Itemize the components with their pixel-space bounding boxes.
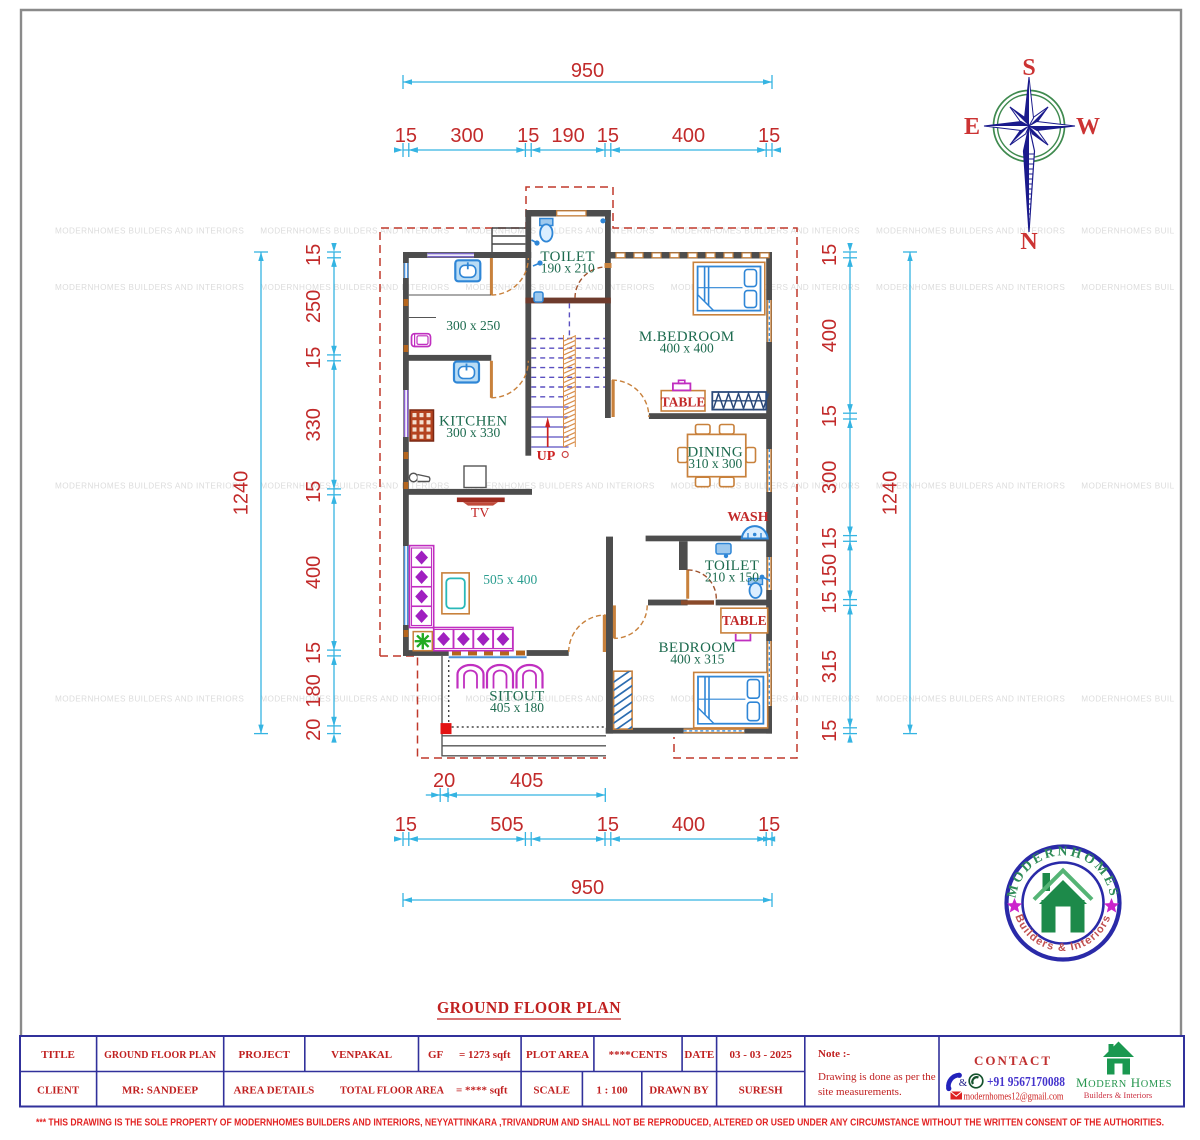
svg-text:UP: UP bbox=[537, 449, 556, 464]
svg-text:405 x 180: 405 x 180 bbox=[490, 700, 544, 715]
svg-text:+91 9567170088: +91 9567170088 bbox=[987, 1074, 1065, 1089]
svg-text:150: 150 bbox=[819, 554, 841, 587]
svg-text:15: 15 bbox=[819, 720, 841, 742]
svg-text:505 x 400: 505 x 400 bbox=[483, 572, 537, 587]
svg-text:15: 15 bbox=[303, 347, 325, 369]
svg-text:Builders & Interiors: Builders & Interiors bbox=[1084, 1090, 1152, 1100]
svg-text:20: 20 bbox=[303, 719, 325, 741]
svg-text:15: 15 bbox=[758, 125, 780, 147]
svg-text:250: 250 bbox=[303, 290, 325, 323]
svg-text:15: 15 bbox=[303, 481, 325, 503]
svg-text:405: 405 bbox=[510, 770, 543, 792]
svg-text:300: 300 bbox=[819, 461, 841, 494]
svg-text:SURESH: SURESH bbox=[739, 1085, 783, 1097]
svg-text:15: 15 bbox=[597, 814, 619, 836]
svg-text:15: 15 bbox=[395, 125, 417, 147]
svg-text:DRAWN BY: DRAWN BY bbox=[649, 1085, 709, 1097]
svg-text:1240: 1240 bbox=[231, 471, 253, 516]
svg-text:= 1273 sqft: = 1273 sqft bbox=[459, 1049, 511, 1061]
svg-text:VENPAKAL: VENPAKAL bbox=[331, 1049, 392, 1061]
svg-text:MR: SANDEEP: MR: SANDEEP bbox=[122, 1085, 198, 1097]
svg-text:400 x 400: 400 x 400 bbox=[660, 341, 714, 356]
svg-text:15: 15 bbox=[517, 125, 539, 147]
svg-text:03 - 03 - 2025: 03 - 03 - 2025 bbox=[730, 1049, 793, 1061]
svg-text:15: 15 bbox=[395, 814, 417, 836]
svg-text:190 x 210: 190 x 210 bbox=[541, 261, 595, 276]
svg-text:15: 15 bbox=[819, 405, 841, 427]
svg-text:15: 15 bbox=[819, 591, 841, 613]
svg-text:GROUND FLOOR PLAN: GROUND FLOOR PLAN bbox=[104, 1049, 216, 1061]
svg-text:S: S bbox=[1022, 55, 1035, 81]
svg-text:CLIENT: CLIENT bbox=[37, 1085, 80, 1097]
svg-text:TABLE: TABLE bbox=[722, 613, 767, 628]
svg-text:MODERNHOMES BUILDERS AND INTER: MODERNHOMES BUILDERS AND INTERIORS MODER… bbox=[55, 283, 1200, 292]
svg-text:315: 315 bbox=[819, 650, 841, 683]
svg-text:*** THIS DRAWING IS THE SOLE P: *** THIS DRAWING IS THE SOLE PROPERTY OF… bbox=[36, 1118, 1164, 1129]
svg-text:190: 190 bbox=[551, 125, 584, 147]
svg-text:180: 180 bbox=[303, 674, 325, 707]
svg-text:E: E bbox=[964, 114, 980, 140]
svg-text:950: 950 bbox=[571, 877, 604, 899]
svg-text:TV: TV bbox=[471, 506, 490, 521]
svg-text:210 x 150: 210 x 150 bbox=[705, 570, 759, 585]
svg-text:TITLE: TITLE bbox=[41, 1049, 75, 1061]
svg-text:****CENTS: ****CENTS bbox=[609, 1049, 668, 1061]
svg-text:400 x 315: 400 x 315 bbox=[670, 652, 724, 667]
svg-text:Drawing is done as per the: Drawing is done as per the bbox=[818, 1071, 936, 1083]
svg-text:400: 400 bbox=[672, 814, 705, 836]
svg-text:modernhomes12@gmail.com: modernhomes12@gmail.com bbox=[964, 1092, 1064, 1103]
svg-text:AREA DETAILS: AREA DETAILS bbox=[234, 1085, 315, 1097]
svg-text:TOTAL FLOOR AREA: TOTAL FLOOR AREA bbox=[340, 1085, 444, 1097]
svg-text:GROUND FLOOR PLAN: GROUND FLOOR PLAN bbox=[437, 998, 621, 1017]
svg-text:300: 300 bbox=[450, 125, 483, 147]
svg-text:15: 15 bbox=[597, 125, 619, 147]
svg-text:1240: 1240 bbox=[880, 471, 902, 516]
svg-text:&: & bbox=[959, 1077, 968, 1089]
svg-text:PLOT AREA: PLOT AREA bbox=[526, 1049, 589, 1061]
svg-text:Note :-: Note :- bbox=[818, 1048, 850, 1060]
svg-text:300 x 250: 300 x 250 bbox=[446, 318, 500, 333]
svg-text:300 x 330: 300 x 330 bbox=[446, 425, 500, 440]
svg-text:15: 15 bbox=[758, 814, 780, 836]
svg-text:TABLE: TABLE bbox=[661, 395, 706, 410]
svg-text:15: 15 bbox=[819, 527, 841, 549]
svg-text:WASH: WASH bbox=[727, 510, 768, 525]
svg-text:1 : 100: 1 : 100 bbox=[596, 1085, 628, 1097]
svg-text:GF: GF bbox=[428, 1049, 444, 1061]
svg-text:400: 400 bbox=[303, 556, 325, 589]
svg-text:W: W bbox=[1076, 114, 1100, 140]
svg-text:CONTACT: CONTACT bbox=[974, 1053, 1052, 1068]
svg-text:DATE: DATE bbox=[684, 1049, 714, 1061]
svg-text:505: 505 bbox=[490, 814, 523, 836]
svg-text:N: N bbox=[1020, 229, 1038, 255]
svg-text:15: 15 bbox=[303, 642, 325, 664]
svg-text:20: 20 bbox=[433, 770, 455, 792]
svg-text:330: 330 bbox=[303, 408, 325, 441]
svg-text:PROJECT: PROJECT bbox=[239, 1049, 291, 1061]
svg-text:= **** sqft: = **** sqft bbox=[456, 1085, 508, 1097]
svg-text:400: 400 bbox=[819, 319, 841, 352]
svg-text:15: 15 bbox=[303, 244, 325, 266]
svg-text:site measurements.: site measurements. bbox=[818, 1086, 902, 1098]
svg-text:15: 15 bbox=[819, 244, 841, 266]
svg-text:MODERNHOMES BUILDERS AND INTER: MODERNHOMES BUILDERS AND INTERIORS MODER… bbox=[55, 482, 1200, 491]
svg-text:400: 400 bbox=[672, 125, 705, 147]
svg-text:950: 950 bbox=[571, 60, 604, 82]
svg-text:SCALE: SCALE bbox=[533, 1085, 570, 1097]
svg-text:310 x 300: 310 x 300 bbox=[688, 456, 742, 471]
